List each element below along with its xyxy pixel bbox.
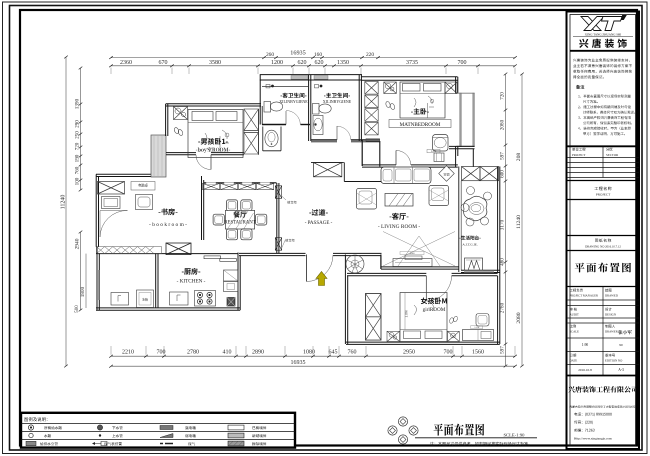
svg-text:700: 700 — [444, 350, 453, 356]
svg-text:PROJECT: PROJECT — [572, 153, 586, 157]
svg-text:160: 160 — [314, 52, 322, 58]
svg-text:620: 620 — [298, 60, 307, 66]
svg-text:4500: 4500 — [410, 252, 416, 255]
svg-text:100: 100 — [75, 177, 81, 185]
svg-text:1.1M: 1.1M — [474, 327, 479, 329]
svg-text:2780: 2780 — [187, 350, 199, 356]
svg-text:MATNBEDROOM: MATNBEDROOM — [400, 122, 441, 128]
svg-text:1800: 1800 — [80, 286, 86, 297]
svg-text:2016.10.8: 2016.10.8 — [578, 368, 592, 372]
svg-text:A-3: A-3 — [618, 368, 624, 372]
svg-text:PROJECT MANAGER: PROJECT MANAGER — [570, 294, 599, 298]
svg-text:1560: 1560 — [472, 350, 484, 356]
svg-text:1:90: 1:90 — [582, 343, 589, 347]
svg-text:- LIVING ROOM -: - LIVING ROOM - — [378, 224, 421, 230]
svg-text:3735: 3735 — [406, 60, 418, 66]
svg-text:2080: 2080 — [516, 312, 522, 323]
svg-text:- KITCHEN -: - KITCHEN - — [177, 279, 206, 285]
svg-text:410: 410 — [223, 350, 232, 356]
svg-text:1350: 1350 — [337, 60, 349, 66]
svg-text:电脑桌: 电脑桌 — [138, 183, 148, 188]
svg-text:空调: 空调 — [443, 172, 449, 177]
svg-text:260: 260 — [266, 52, 274, 58]
svg-text:500: 500 — [75, 305, 80, 313]
svg-text:SCALE: SCALE — [570, 330, 580, 334]
svg-text:208: 208 — [516, 153, 522, 162]
svg-text:DRAWER: DRAWER — [605, 330, 618, 334]
svg-text:220: 220 — [366, 52, 374, 58]
svg-text:- PASSAGE -: - PASSAGE - — [305, 221, 333, 226]
svg-text:597: 597 — [500, 346, 506, 354]
svg-text:760: 760 — [348, 350, 357, 356]
svg-text:2780: 2780 — [500, 302, 506, 313]
svg-text:1390: 1390 — [75, 98, 81, 109]
svg-text:RESTAURANT: RESTAURANT — [224, 221, 255, 226]
svg-text:DRAWED: DRAWED — [605, 294, 619, 298]
svg-text:190: 190 — [75, 154, 81, 162]
svg-text:760: 760 — [75, 166, 81, 174]
svg-text:1200: 1200 — [271, 60, 283, 66]
svg-text:480: 480 — [500, 258, 506, 266]
svg-text:XING TANG ZHUANG SHI: XING TANG ZHUANG SHI — [585, 32, 621, 36]
svg-text:1.2M: 1.2M — [431, 150, 437, 153]
svg-text:DATE: DATE — [570, 359, 578, 363]
svg-text:XILINBYGIENE: XILINBYGIENE — [323, 99, 352, 104]
svg-text:PROJECT: PROJECT — [596, 193, 611, 197]
svg-text:700: 700 — [458, 60, 467, 66]
svg-text:2940: 2940 — [75, 238, 81, 249]
svg-text:DESIGN: DESIGN — [605, 313, 617, 317]
svg-text:2210: 2210 — [122, 350, 134, 356]
svg-text:Http://www.xingtangjs.com: Http://www.xingtangjs.com — [574, 437, 612, 441]
svg-text:3580: 3580 — [209, 60, 221, 66]
svg-text:720: 720 — [500, 92, 506, 100]
svg-text:2360: 2360 — [120, 60, 132, 66]
svg-text:1080: 1080 — [303, 350, 315, 356]
svg-text:11240: 11240 — [61, 195, 67, 210]
svg-text:EDITION NO: EDITION NO — [605, 359, 623, 363]
svg-text:3170: 3170 — [500, 219, 506, 230]
svg-text:SCLE-1:90: SCLE-1:90 — [504, 433, 526, 438]
svg-text:girlROOM: girlROOM — [423, 307, 446, 313]
svg-text:11240: 11240 — [516, 215, 522, 229]
svg-text:90: 90 — [619, 343, 623, 347]
svg-text:A.I.T.G.IE.: A.I.T.G.IE. — [462, 243, 477, 247]
svg-text:720: 720 — [75, 142, 81, 150]
svg-text:2080: 2080 — [500, 119, 506, 130]
svg-text:DRAWING NO 2016.10.7.12: DRAWING NO 2016.10.7.12 — [585, 244, 621, 248]
svg-text:620: 620 — [315, 60, 324, 66]
svg-text:SECTOR: SECTOR — [606, 153, 619, 157]
svg-text:XILINBYGIENE: XILINBYGIENE — [279, 99, 308, 104]
svg-text:- b o o k r o o m -: - b o o k r o o m - — [149, 222, 187, 228]
svg-text:670: 670 — [159, 60, 168, 66]
svg-text:16935: 16935 — [290, 50, 305, 57]
svg-text:2950: 2950 — [403, 350, 415, 356]
svg-text:645: 645 — [329, 350, 338, 356]
svg-text:16935: 16935 — [291, 360, 306, 366]
svg-text:290: 290 — [75, 120, 81, 128]
svg-text:冰箱: 冰箱 — [142, 297, 148, 302]
svg-text:AUDIT: AUDIT — [570, 313, 579, 317]
svg-text:597: 597 — [500, 152, 506, 160]
svg-text:2890: 2890 — [252, 350, 264, 356]
svg-text:600: 600 — [500, 170, 506, 178]
